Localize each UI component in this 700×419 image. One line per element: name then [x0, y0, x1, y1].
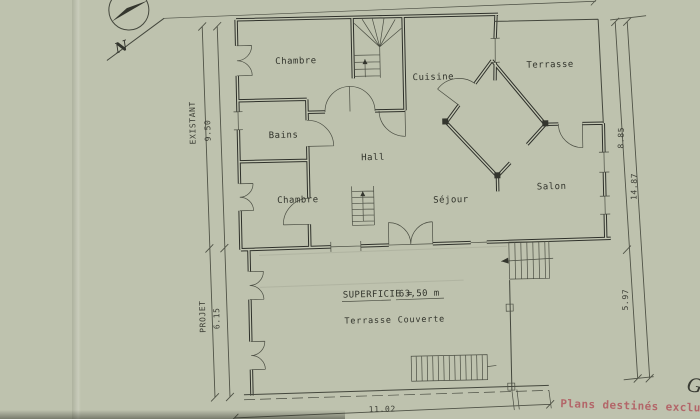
floor-plan-photo: N — [0, 0, 700, 419]
garden-steps — [411, 354, 497, 381]
ghost-lines — [259, 246, 508, 287]
dim-projet-height: 6.15 — [212, 307, 221, 329]
paper-bottom-shadow — [0, 410, 345, 419]
staircase-main — [353, 17, 402, 78]
wall-post — [442, 118, 448, 124]
wall-post — [542, 120, 548, 126]
dim-existant-height: 9.50 — [203, 119, 212, 141]
dim-right-upper: 8.85 — [616, 127, 625, 149]
room-label-bedroom-bottom: Chambre — [277, 195, 319, 206]
room-label-living: Séjour — [433, 194, 469, 206]
room-label-kitchen: Cuisine — [413, 72, 455, 83]
wall-post — [494, 172, 500, 178]
room-label-covered-terrace: Terrasse Couverte — [344, 315, 445, 327]
dim-right-lower: 5.97 — [621, 289, 630, 311]
dim-right-total: 14.87 — [629, 173, 638, 200]
room-label-hall: Hall — [361, 153, 385, 163]
room-labels: Chambre Cuisine Terrasse Bains Hall Cham… — [267, 51, 577, 209]
room-label-terrace: Terrasse — [526, 60, 574, 71]
dim-bottom-width: 11.02 — [369, 405, 396, 415]
area-value: 63,50 m — [399, 289, 440, 300]
floor-plan-drawing: N — [0, 0, 700, 419]
compass-circle — [108, 0, 149, 30]
annotations: SUPERFICIE = 63,50 m Terrasse Couverte — [342, 289, 445, 327]
section-label-projet: PROJET — [198, 300, 208, 333]
staircase-cellar — [352, 186, 375, 225]
room-label-bathroom: Bains — [269, 131, 299, 142]
terrace-outline — [494, 19, 603, 125]
compass-rose-icon: N — [105, 0, 164, 61]
compass-needle — [112, 1, 148, 22]
plan-group: N — [105, 0, 700, 419]
handwritten-mark: G — [685, 374, 700, 398]
section-label-existant: EXISTANT — [188, 101, 198, 145]
stamp-text: Plans destinés exclusivement — [560, 397, 700, 416]
staircase-exterior — [501, 241, 554, 279]
room-label-bedroom-top: Chambre — [275, 56, 317, 67]
room-label-salon: Salon — [537, 182, 567, 193]
